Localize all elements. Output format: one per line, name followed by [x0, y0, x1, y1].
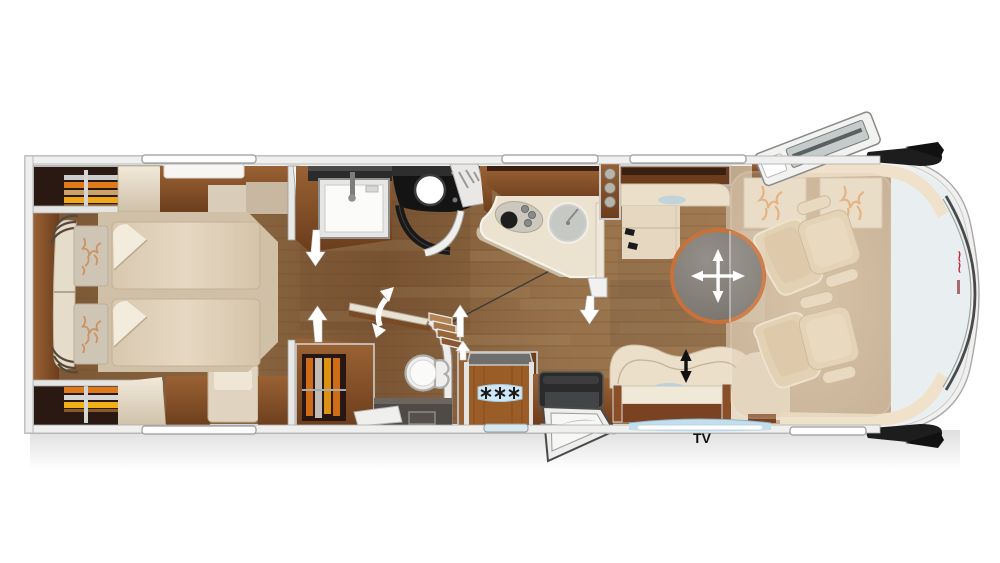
svg-text:⁓⁓: ⁓⁓ [953, 251, 965, 273]
